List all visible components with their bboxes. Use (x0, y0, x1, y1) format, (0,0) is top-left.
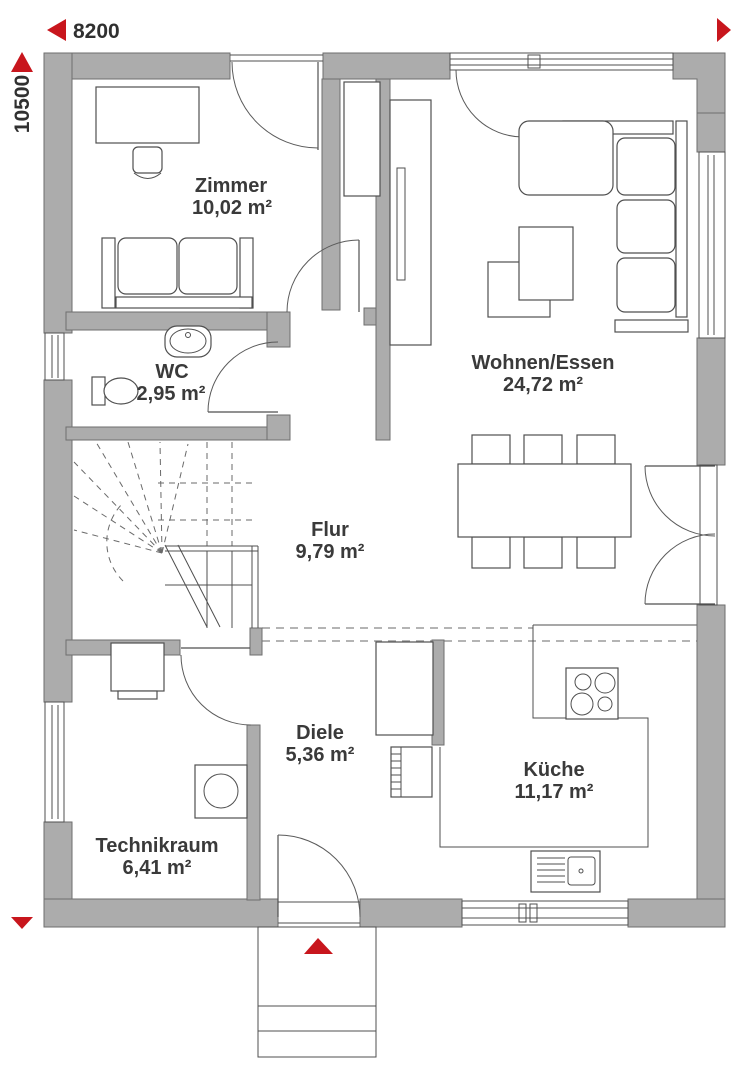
wardrobe-diele (376, 642, 433, 735)
ceiling-edge-lines (262, 625, 697, 641)
technik-cabinet (111, 643, 164, 699)
furniture-wohnen (390, 100, 688, 568)
label-wc: WC (155, 361, 188, 383)
label-wohnen-area: 24,72 m² (503, 374, 583, 396)
stove (566, 668, 618, 719)
dining-chair (472, 435, 510, 464)
window-kitchen (462, 901, 628, 925)
dimension-width: 8200 (47, 18, 731, 43)
label-kueche-area: 11,17 m² (515, 781, 594, 803)
wardrobe-niche (344, 82, 380, 196)
entrance-porch (258, 927, 376, 1057)
arrow-up-icon (11, 52, 33, 72)
staircase (74, 442, 258, 628)
dining-chair (524, 537, 562, 568)
dining-table (458, 464, 631, 537)
label-technikraum-area: 6,41 m² (123, 857, 192, 879)
washing-machine (195, 765, 247, 818)
label-wc-area: 2,95 m² (137, 383, 206, 405)
label-technikraum: Technikraum (96, 835, 219, 857)
label-flur: Flur (311, 519, 349, 541)
desk (96, 87, 199, 143)
entrance-arrow-icon (304, 938, 333, 954)
window-wc (45, 333, 64, 380)
coffee-tables (488, 227, 573, 317)
floor-plan: 8200 10500 (0, 0, 750, 1080)
sofa-zimmer (102, 238, 253, 308)
toilet (92, 377, 138, 405)
desk-chair (133, 147, 162, 179)
cabinet-wohnen (390, 100, 431, 345)
sink-wc (165, 326, 211, 357)
furniture-kueche (376, 625, 648, 892)
door-zimmer-exterior (230, 55, 323, 150)
dining-chair (524, 435, 562, 464)
radiator (391, 747, 432, 797)
label-wohnen: Wohnen/Essen (472, 352, 615, 374)
label-flur-area: 9,79 m² (296, 541, 365, 563)
dimension-width-label: 8200 (73, 20, 120, 43)
furniture-technikraum (111, 643, 247, 818)
label-kueche: Küche (523, 759, 584, 781)
door-technikraum (181, 648, 251, 725)
dimension-height: 10500 (11, 52, 34, 929)
label-diele: Diele (296, 722, 344, 744)
window-right (699, 152, 725, 338)
dining-chair (577, 537, 615, 568)
dining-chair (577, 435, 615, 464)
door-wc (208, 342, 278, 412)
window-top (450, 53, 673, 70)
window-technikraum (45, 702, 64, 822)
kitchen-counter (440, 625, 648, 847)
door-wohnen-terrace-top (456, 70, 523, 137)
label-diele-area: 5,36 m² (286, 744, 355, 766)
dimension-height-label: 10500 (11, 75, 34, 133)
dining-chair (472, 537, 510, 568)
label-zimmer-area: 10,02 m² (192, 197, 272, 219)
arrow-down-icon (11, 917, 33, 929)
label-zimmer: Zimmer (195, 175, 267, 197)
dining-set (458, 435, 631, 568)
arrow-left-icon (47, 19, 66, 41)
kitchen-sink (531, 851, 600, 892)
arrow-right-icon (717, 18, 731, 42)
door-entrance (278, 835, 360, 923)
door-french-right (645, 465, 717, 605)
